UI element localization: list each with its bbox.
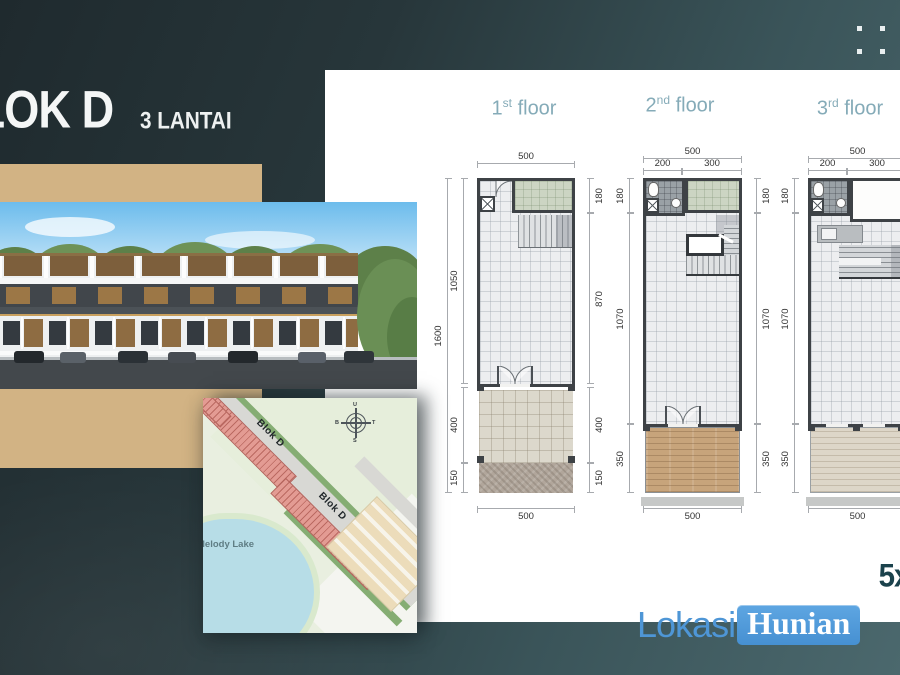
plan2-stair-edge xyxy=(686,274,739,276)
page-subtitle: 3 LANTAI xyxy=(140,107,232,137)
plan2-dim-left-2: 1070 xyxy=(629,213,630,424)
floor-3-label: 3rd floor xyxy=(790,96,900,121)
plan1-dim-right-3: 400 xyxy=(589,387,590,463)
plan1-post xyxy=(477,384,484,391)
plan1-dim-top: 500 xyxy=(477,163,575,164)
plan1-stair-landing xyxy=(556,215,572,247)
plan2-dim-top-300: 300 xyxy=(682,170,742,171)
plan2-garden-pad xyxy=(685,181,739,213)
site-plan-map: Blok D Blok D Melody Lake U T S B xyxy=(203,398,417,633)
floor-1-label: 1st floor xyxy=(464,96,584,121)
plan1-garden-pad xyxy=(512,181,572,213)
plan3-post xyxy=(853,424,860,431)
plan2-double-door xyxy=(665,406,701,424)
compass-south: S xyxy=(353,438,357,444)
floor-plan-2: 500 200 300 180 1070 350 180 1070 350 50… xyxy=(643,178,742,493)
plan1-dim-left-3: 150 xyxy=(463,463,464,493)
lokasihunian-logo: Lokasi Hunian xyxy=(637,604,860,646)
title-block: BLOK D 3 LANTAI xyxy=(0,88,242,137)
plan1-post xyxy=(477,456,484,463)
compass-icon: U T S B xyxy=(341,408,371,438)
plan1-dim-right-1: 180 xyxy=(589,178,590,213)
plan1-shaft xyxy=(480,196,495,212)
plan2-dim-left-1: 180 xyxy=(629,178,630,213)
plan2-house-outline xyxy=(643,178,742,427)
plan3-kitchen-sink xyxy=(821,228,837,240)
plan1-house-outline xyxy=(477,178,575,387)
plan1-dim-bottom: 500 xyxy=(477,508,575,509)
map-lake-label: Melody Lake xyxy=(203,539,254,550)
plan2-post xyxy=(643,424,650,431)
plan1-door-opening xyxy=(500,384,530,387)
plan2-dim-right-3: 350 xyxy=(756,424,757,493)
plan2-dim-right-2: 1070 xyxy=(756,213,757,424)
plan1-entry-door xyxy=(495,181,512,198)
dot xyxy=(857,49,862,54)
plan3-dim-left-1: 180 xyxy=(794,178,795,213)
plan3-house-outline xyxy=(808,178,900,427)
page-title: BLOK D xyxy=(0,84,113,137)
plan3-roof-strip xyxy=(806,497,900,506)
plan1-dim-left-outer: 1600 xyxy=(447,178,448,493)
floor-plan-3: 500 200 300 180 1070 350 500 xyxy=(808,178,900,493)
logo-text-lokasi: Lokasi xyxy=(637,604,735,646)
floor-plan-1: 500 1600 1050 400 150 180 870 400 150 50… xyxy=(477,178,575,493)
plan3-post xyxy=(808,424,815,431)
plan3-dim-bottom: 500 xyxy=(808,508,900,509)
plan3-stair-flight-gap xyxy=(839,258,881,265)
slide: BLOK D 3 LANTAI xyxy=(0,0,900,675)
compass-east: T xyxy=(372,420,375,426)
plan1-post xyxy=(568,384,575,391)
plan3-shaft xyxy=(811,198,824,213)
plan2-dim-bottom: 500 xyxy=(643,508,742,509)
floor-2-label: 2nd floor xyxy=(620,93,740,118)
dot xyxy=(880,49,885,54)
plan1-dim-right-2: 870 xyxy=(589,213,590,384)
plan2-dim-left-3: 350 xyxy=(629,424,630,493)
building-render-image xyxy=(0,202,417,389)
plan1-carport xyxy=(479,390,573,463)
plan3-stair-landing xyxy=(891,245,900,278)
building-render-art xyxy=(0,202,417,389)
logo-text-hunian: Hunian xyxy=(737,605,860,645)
plan2-roof-strip xyxy=(641,497,744,506)
plan1-dim-left-2: 400 xyxy=(463,387,464,463)
plan2-stair-void xyxy=(686,234,724,256)
plan1-paving-strip xyxy=(479,463,573,493)
plan3-open-area xyxy=(850,181,900,222)
unit-size-label: 5x16 xyxy=(879,557,900,595)
plan3-dim-left-2: 1070 xyxy=(794,213,795,424)
plan2-stairs-lower xyxy=(686,255,739,274)
plan2-dim-top-200: 200 xyxy=(643,170,682,171)
compass-west: B xyxy=(335,420,339,426)
plan2-dim-right-1: 180 xyxy=(756,178,757,213)
plan1-dim-right-4: 150 xyxy=(589,463,590,493)
plan3-stair-edge xyxy=(839,277,900,279)
dot xyxy=(880,26,885,31)
plan2-post xyxy=(735,424,742,431)
plan2-shaft xyxy=(646,198,659,213)
plan1-dim-left-1: 1050 xyxy=(463,178,464,384)
compass-north: U xyxy=(353,402,357,408)
dot xyxy=(857,26,862,31)
plan1-post xyxy=(568,456,575,463)
plan3-dim-left-3: 350 xyxy=(794,424,795,493)
plan3-dim-top-200: 200 xyxy=(808,170,847,171)
plan3-dim-top-300: 300 xyxy=(847,170,900,171)
plan3-balcony xyxy=(810,427,900,493)
plan2-balcony xyxy=(645,427,740,493)
plan1-double-door xyxy=(497,366,533,384)
